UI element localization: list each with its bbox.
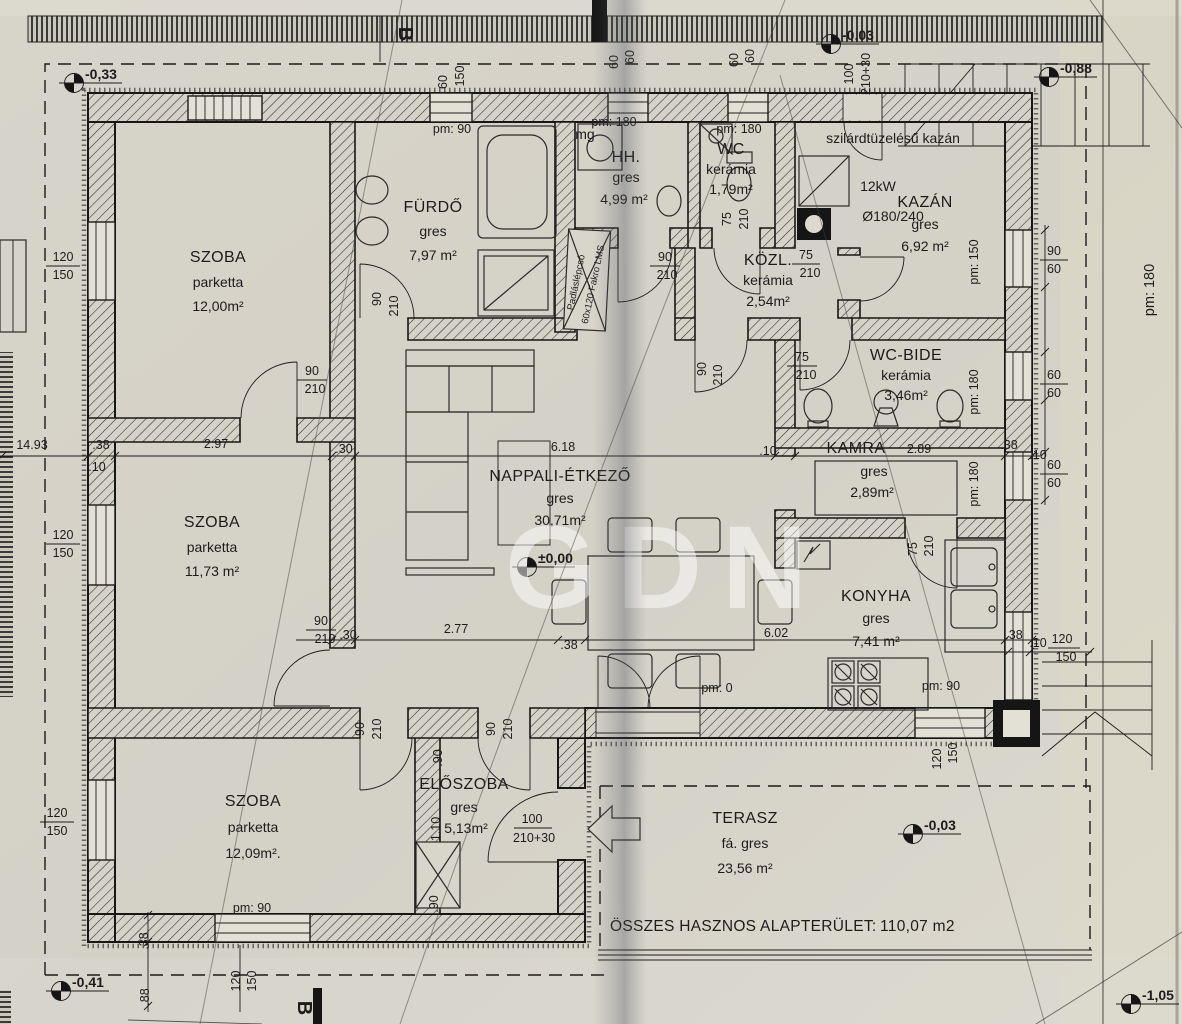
dim-label: 120 — [930, 749, 944, 770]
dim-label: 60 — [1047, 386, 1061, 400]
level-value: -0,88 — [1060, 60, 1092, 76]
room-label-terasz: TERASZ fá. gres 23,56 m² — [712, 810, 778, 876]
window-symbol — [215, 914, 310, 942]
dim-label: .38 — [92, 438, 109, 452]
floor-plan-svg: -0,33 -0,03 -0,88 ±0,00 -0,03 -0,41 -1,0… — [0, 0, 1182, 1024]
dim-label: 210+30 — [513, 831, 555, 845]
pm-label: pm: 0 — [701, 681, 732, 695]
dim-label: 120 — [1052, 632, 1073, 646]
room-finish: gres — [862, 610, 889, 626]
dim-label: .30 — [335, 442, 352, 456]
level-value: -0,03 — [842, 27, 874, 43]
dim-label: 75 — [795, 350, 809, 364]
dim-label: .90 — [427, 895, 441, 912]
room-name: FÜRDŐ — [404, 197, 463, 216]
room-area: 2,54m² — [746, 293, 790, 309]
dim-label: 60 — [436, 75, 450, 89]
dim-label: 90 — [695, 362, 709, 376]
watermark: GDN — [505, 502, 827, 634]
window-symbol — [1005, 452, 1032, 500]
paper-top-right-tint — [1060, 0, 1182, 1024]
room-finish: kerámia — [743, 272, 793, 288]
dim-label: 120 — [53, 528, 74, 542]
dim-label: 75 — [720, 212, 734, 226]
pm-label: pm: 180 — [716, 122, 761, 136]
dim-label: 75 — [906, 542, 920, 556]
room-area: 2,89m² — [850, 484, 894, 500]
room-name: TERASZ — [712, 810, 778, 827]
window-symbol — [1005, 230, 1032, 287]
room-name: SZOBA — [225, 793, 281, 810]
dim-label: .88 — [138, 988, 152, 1005]
dim-label: 210 — [387, 296, 401, 317]
room-width-dim: 2.89 — [907, 442, 931, 456]
room-finish: gres — [419, 223, 446, 239]
dim-label: .38 — [137, 932, 151, 949]
dim-label: .38 — [1000, 438, 1017, 452]
boiler-power-label: 12kW — [860, 178, 897, 194]
room-name: KONYHA — [841, 588, 911, 605]
room-area: 11,73 m² — [185, 563, 240, 579]
dim-label: 120 — [229, 971, 243, 992]
dim-label: 210 — [315, 632, 336, 646]
dim-label: 90 — [305, 364, 319, 378]
dim-label: 90 — [353, 722, 367, 736]
room-name: WC-BIDE — [870, 347, 942, 364]
room-finish: gres — [860, 463, 887, 479]
level-value: -0,41 — [72, 974, 104, 990]
section-letter-top: B — [394, 27, 416, 41]
room-name: ELŐSZOBA — [419, 774, 508, 793]
window-symbol — [88, 222, 115, 300]
dim-label: 100 — [522, 812, 543, 826]
dim-label: 150 — [453, 66, 467, 87]
room-area: 6,92 m² — [901, 238, 949, 254]
room-label-szoba-2: SZOBA parketta 11,73 m² — [184, 514, 240, 579]
room-name: SZOBA — [184, 514, 240, 531]
room-area: 1,79m² — [709, 181, 753, 197]
dim-label: 150 — [47, 824, 68, 838]
room-name: WC — [717, 141, 744, 158]
floor-plan-scan: -0,33 -0,03 -0,88 ±0,00 -0,03 -0,41 -1,0… — [0, 0, 1182, 1024]
room-label-szoba-1: SZOBA parketta 12,00m² — [190, 249, 246, 314]
dim-label: 210 — [711, 365, 725, 386]
room-finish: kerámia — [706, 161, 756, 177]
dim-label: 210 — [501, 719, 515, 740]
room-area: 5,13m² — [444, 820, 488, 836]
dim-label: 14.93 — [16, 438, 47, 452]
window-symbol — [88, 780, 115, 860]
radiator-icon — [188, 96, 262, 120]
left-striped-edge — [0, 352, 13, 697]
dim-label: 75 — [799, 248, 813, 262]
dim-label: .38 — [1005, 628, 1022, 642]
dim-label: 60 — [1047, 368, 1061, 382]
dim-label: .38 — [560, 638, 577, 652]
dim-label: 90 — [658, 250, 672, 264]
dim-label: 210 — [922, 536, 936, 557]
pm-label: pm: 90 — [233, 901, 271, 915]
room-area: 12,00m² — [192, 298, 244, 314]
dim-label: 60 — [1047, 476, 1061, 490]
dim-label: 150 — [946, 743, 960, 764]
paper-bottom-tint — [0, 958, 1182, 1024]
total-area-label: ÖSSZES HASZNOS ALAPTERÜLET: — [610, 917, 877, 935]
room-area: 3,46m² — [884, 387, 928, 403]
pm-label: pm: 150 — [967, 239, 981, 284]
dim-label: 2.97 — [204, 437, 228, 451]
dim-label: .10 — [1029, 636, 1046, 650]
room-name: KÖZL. — [744, 251, 792, 269]
top-striped-band — [28, 16, 1102, 42]
dim-label: 90 — [314, 614, 328, 628]
dim-label: 210 — [305, 382, 326, 396]
pm-label: pm: 180 — [967, 461, 981, 506]
room-name: KAMRA — [827, 440, 886, 457]
dim-label: .30 — [339, 628, 356, 642]
room-area: 7,97 m² — [409, 247, 457, 263]
dim-label: 150 — [1056, 650, 1077, 664]
dim-label: 6.18 — [551, 440, 575, 454]
dim-label: 210 — [737, 209, 751, 230]
total-area-value: 110,07 m2 — [880, 918, 955, 935]
level-value: -0,03 — [924, 817, 956, 833]
room-finish: parketta — [187, 539, 238, 555]
room-finish: fá. gres — [722, 835, 769, 851]
dim-label: 150 — [53, 546, 74, 560]
room-label-kozl: KÖZL. kerámia 2,54m² — [743, 251, 793, 309]
dim-label: .10 — [1029, 448, 1046, 462]
room-label-szoba-3: SZOBA parketta 12,09m². — [225, 793, 281, 861]
dim-label: 90 — [370, 292, 384, 306]
dim-label: 150 — [53, 268, 74, 282]
dim-label: 120 — [47, 806, 68, 820]
level-value: -1,05 — [1142, 987, 1174, 1003]
dim-label: 210 — [800, 266, 821, 280]
dim-label: 210 — [370, 719, 384, 740]
paper-top-margin — [0, 0, 1182, 16]
boiler-room-note: szilárdtüzelésű kazán — [826, 130, 960, 146]
dim-label: 90 — [484, 722, 498, 736]
dim-label: 120 — [53, 250, 74, 264]
dim-label: .90 — [431, 749, 445, 766]
dim-label: 100 — [842, 64, 856, 85]
room-finish: parketta — [193, 274, 244, 290]
bottom-left-striped-edge — [0, 990, 11, 1024]
dim-label: 150 — [245, 971, 259, 992]
room-finish: parketta — [228, 819, 279, 835]
dim-label: 90 — [1047, 244, 1061, 258]
pm-label: pm: 180 — [1142, 264, 1158, 316]
pm-label: pm: 90 — [433, 122, 471, 136]
room-finish: gres — [450, 799, 477, 815]
window-symbol — [1005, 352, 1032, 400]
window-symbol — [1005, 612, 1032, 700]
window-symbol — [728, 93, 768, 122]
dim-label: 60 — [1047, 262, 1061, 276]
dim-label: 60 — [743, 49, 757, 63]
dim-label: 1.10 — [429, 817, 443, 841]
window-symbol — [430, 93, 472, 122]
dim-label: 60 — [727, 53, 741, 67]
window-symbol — [88, 505, 115, 585]
dim-label: 210+30 — [859, 53, 873, 95]
level-value: -0,33 — [85, 66, 117, 82]
dim-label: 2.77 — [444, 622, 468, 636]
room-area: 7,41 m² — [852, 633, 900, 649]
room-name: SZOBA — [190, 249, 246, 266]
dim-label: 210 — [796, 368, 817, 382]
section-letter-bottom: B — [293, 1001, 315, 1015]
room-area: 23,56 m² — [717, 860, 773, 876]
pillar-black-icon — [993, 700, 1040, 747]
dim-label: .10 — [88, 460, 105, 474]
room-finish: kerámia — [881, 367, 931, 383]
pm-label: pm: 180 — [967, 369, 981, 414]
window-symbol — [915, 708, 985, 738]
pm-label: pm: 90 — [922, 679, 960, 693]
dim-label: 60 — [1047, 458, 1061, 472]
dim-label: .10 — [759, 444, 776, 458]
chimney-size-label: Ø180/240 — [862, 208, 924, 224]
fold-shadow — [593, 0, 647, 1024]
